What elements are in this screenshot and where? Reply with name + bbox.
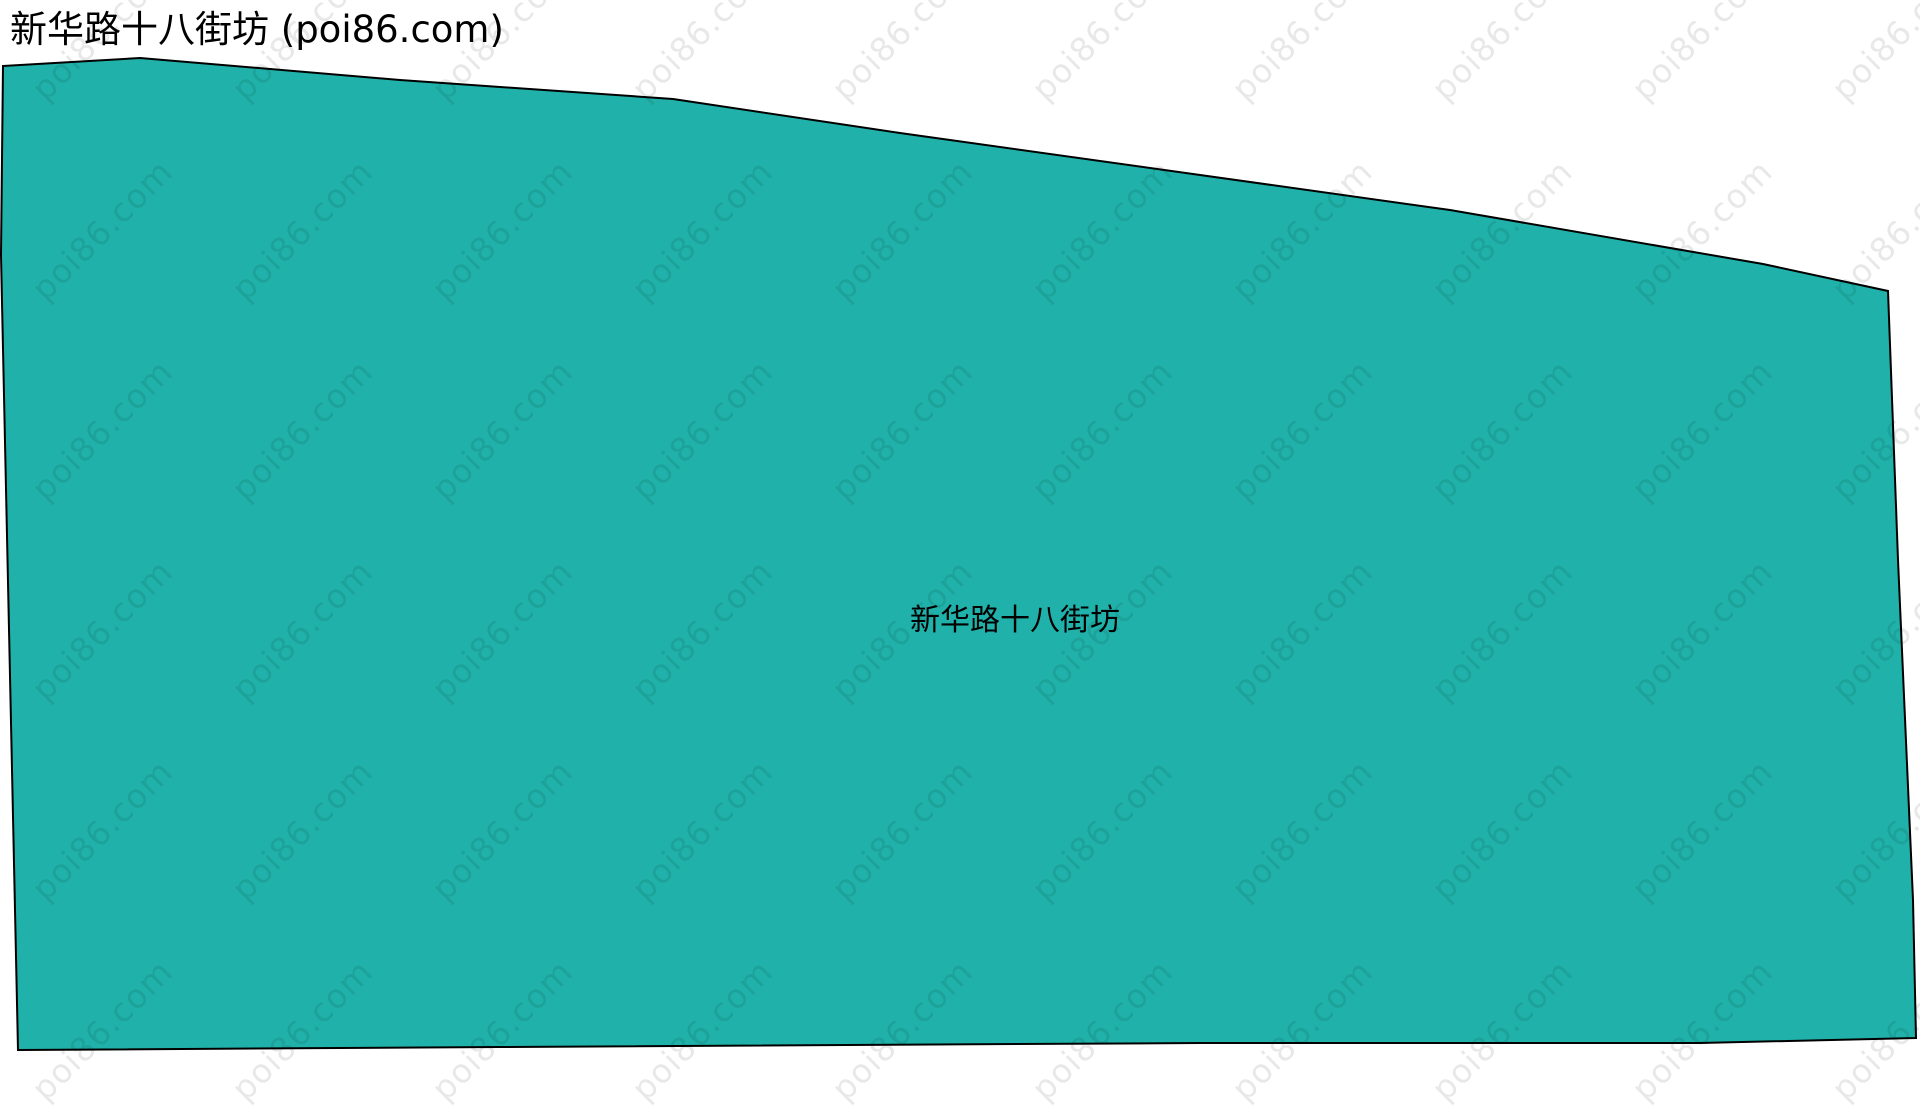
region-label: 新华路十八街坊 (910, 595, 1120, 639)
boundary-polygon-svg (0, 0, 1920, 1116)
page-title: 新华路十八街坊 (poi86.com) (10, 8, 504, 52)
region-boundary-polygon (1, 58, 1916, 1050)
map-canvas: poi86.compoi86.compoi86.compoi86.compoi8… (0, 0, 1920, 1116)
